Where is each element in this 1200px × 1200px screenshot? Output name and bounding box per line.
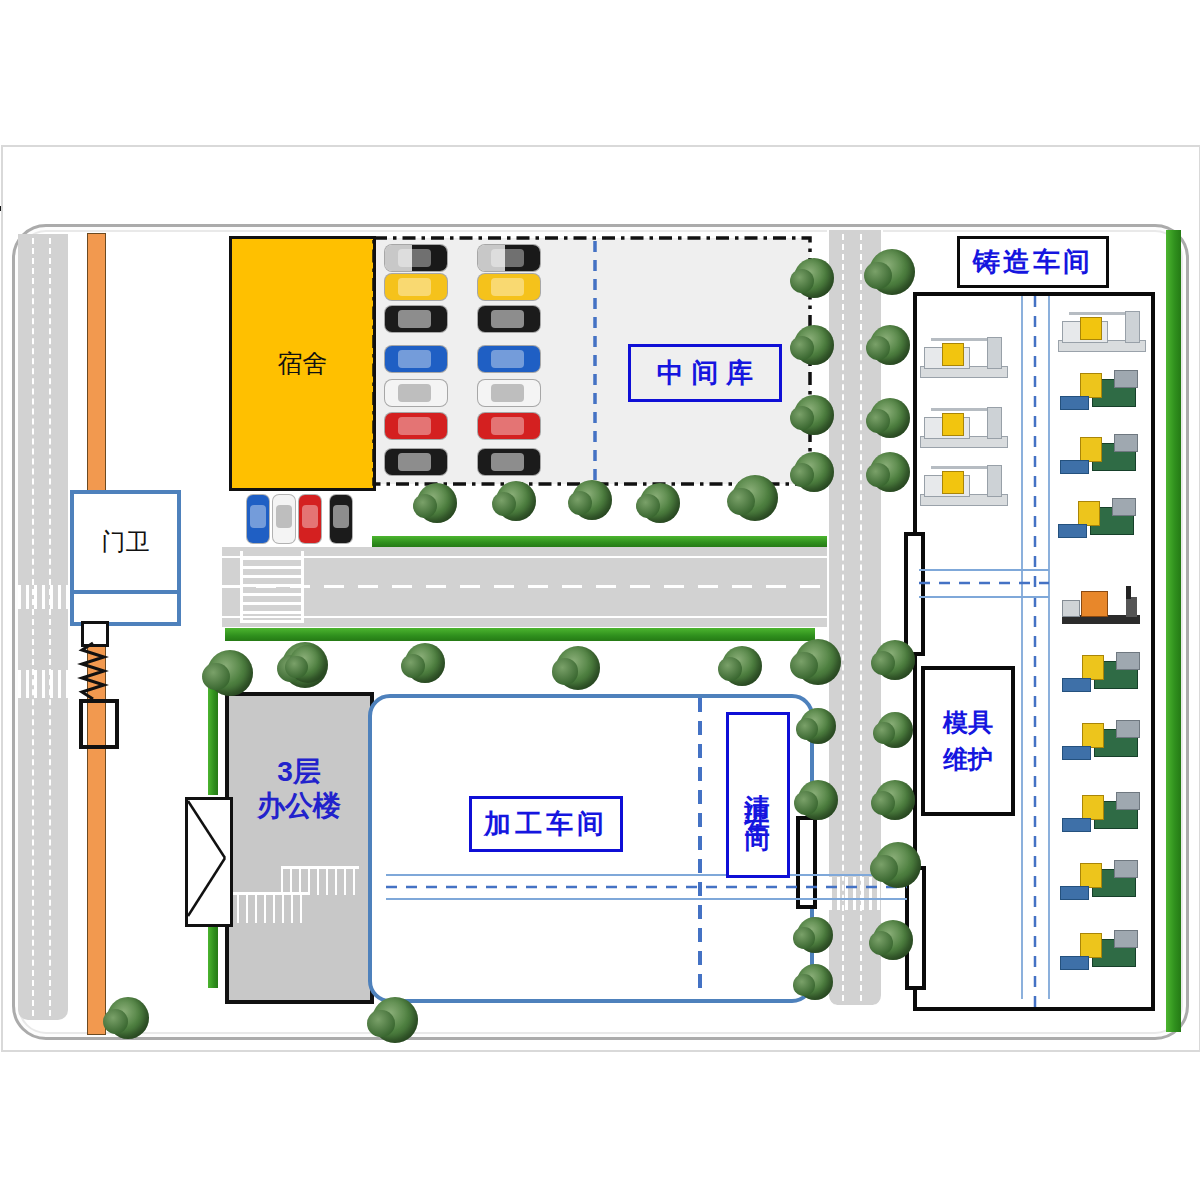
- road-center-dash: [222, 585, 827, 588]
- processing-label: 加工车间: [484, 806, 608, 842]
- tree-icon: [870, 398, 910, 438]
- lane-marking: [49, 238, 51, 1016]
- road-edge-line: [222, 556, 827, 558]
- die-casting-machine-icon: [1060, 930, 1138, 970]
- internal-road-horizontal: [222, 547, 827, 627]
- crosswalk: [18, 670, 68, 698]
- die-casting-machine-icon: [1060, 370, 1138, 410]
- stairs: [281, 866, 359, 895]
- tree-icon: [873, 920, 913, 960]
- car-icon: [478, 306, 540, 332]
- dormitory-building: 宿舍: [229, 236, 376, 491]
- office-label-line1: 3层: [277, 756, 321, 787]
- lane-marking: [32, 238, 34, 1016]
- gatehouse: 门卫: [70, 490, 181, 626]
- workshop-door: [904, 532, 925, 656]
- office-label: 3层 办公楼: [225, 755, 373, 822]
- warehouse-label-box: 中 间 库: [628, 344, 782, 402]
- casting-label: 铸造车间: [973, 244, 1093, 280]
- cleaning-label: 清理车间: [742, 773, 775, 817]
- tree-icon: [798, 780, 838, 820]
- grass-strip: [225, 628, 815, 641]
- car-icon: [385, 245, 447, 271]
- tree-icon: [877, 712, 913, 748]
- crosswalk: [18, 585, 68, 609]
- factory-gate: [79, 699, 119, 749]
- tree-icon: [732, 475, 778, 521]
- tree-icon: [794, 452, 834, 492]
- car-icon: [478, 245, 540, 271]
- car-icon: [385, 449, 447, 475]
- tree-icon: [875, 780, 915, 820]
- die-casting-machine-icon: [1058, 498, 1136, 538]
- die-casting-machine-icon: [1058, 310, 1146, 352]
- die-casting-machine-icon: [1060, 860, 1138, 900]
- car-icon: [385, 380, 447, 406]
- processing-label-box: 加工车间: [469, 796, 623, 852]
- tree-icon: [722, 646, 762, 686]
- tree-icon: [875, 842, 921, 888]
- car-icon: [478, 413, 540, 439]
- grass-strip: [208, 687, 218, 795]
- mold-label-line2: 维护: [943, 745, 993, 773]
- car-icon: [385, 346, 447, 372]
- tree-icon: [794, 258, 834, 298]
- die-casting-machine-icon: [1060, 434, 1138, 474]
- car-icon: [478, 274, 540, 300]
- tree-icon: [405, 643, 445, 683]
- tree-icon: [572, 480, 612, 520]
- tree-icon: [496, 481, 536, 521]
- tree-icon: [640, 483, 680, 523]
- car-icon: [478, 449, 540, 475]
- tree-icon: [875, 640, 915, 680]
- crosswalk: [240, 551, 304, 623]
- mold-label-line1: 模具: [943, 708, 993, 736]
- die-casting-machine-icon: [920, 336, 1008, 378]
- tree-icon: [797, 964, 833, 1000]
- casting-label-box: 铸造车间: [957, 236, 1109, 288]
- tree-icon: [800, 708, 836, 744]
- road-edge-line: [222, 616, 827, 618]
- tree-icon: [556, 646, 600, 690]
- gatehouse-barrier: [74, 590, 177, 614]
- warehouse-label: 中 间 库: [657, 355, 753, 391]
- cleaning-label-box: 清理车间: [726, 712, 790, 878]
- transport-machine-icon: [1060, 586, 1142, 624]
- die-casting-machine-icon: [1062, 720, 1140, 760]
- car-icon: [385, 274, 447, 300]
- die-casting-machine-icon: [920, 464, 1008, 506]
- stairs: [228, 892, 308, 923]
- gate-post: [81, 621, 109, 647]
- die-casting-machine-icon: [920, 406, 1008, 448]
- mold-maintenance-label-box: 模具 维护: [921, 666, 1015, 816]
- tree-icon: [417, 483, 457, 523]
- workshop-door: [796, 816, 817, 909]
- office-label-line2: 办公楼: [257, 790, 341, 821]
- car-icon: [385, 306, 447, 332]
- car-icon: [247, 495, 269, 543]
- tree-icon: [795, 639, 841, 685]
- tree-icon: [869, 249, 915, 295]
- grass-strip: [372, 536, 827, 547]
- crosswalk: [829, 877, 881, 910]
- tree-icon: [207, 650, 253, 696]
- office-building: [225, 692, 374, 1004]
- car-icon: [299, 495, 321, 543]
- car-icon: [330, 495, 352, 543]
- die-casting-machine-icon: [1062, 792, 1140, 832]
- grass-strip-right: [1166, 230, 1181, 1032]
- car-icon: [273, 495, 295, 543]
- tree-icon: [794, 325, 834, 365]
- die-casting-machine-icon: [1062, 652, 1140, 692]
- tree-icon: [289, 645, 327, 683]
- tree-icon: [870, 452, 910, 492]
- tree-icon: [794, 395, 834, 435]
- left-public-road: [18, 234, 68, 1020]
- gatehouse-label: 门卫: [102, 526, 150, 558]
- grass-strip: [208, 922, 218, 988]
- tree-icon: [372, 997, 418, 1043]
- factory-layout-slide: 公司概况 公司平面布置图 南京天翔机电有限公司 宿舍: [0, 0, 1200, 1200]
- tree-icon: [870, 325, 910, 365]
- tree-icon: [107, 997, 149, 1039]
- car-icon: [385, 413, 447, 439]
- tree-icon: [797, 917, 833, 953]
- car-icon: [478, 380, 540, 406]
- dormitory-label: 宿舍: [278, 347, 328, 380]
- car-icon: [478, 346, 540, 372]
